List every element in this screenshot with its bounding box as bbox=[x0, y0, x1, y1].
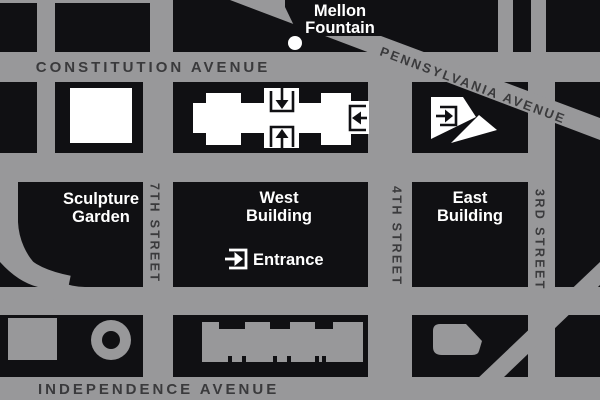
east-building-label-line1: East bbox=[453, 189, 488, 207]
sculpture-garden-label-line2: Garden bbox=[72, 208, 130, 226]
third-street-label: 3RD STREET bbox=[533, 189, 547, 291]
independence-avenue-label: INDEPENDENCE AVENUE bbox=[38, 381, 279, 398]
seventh-street-label: 7TH STREET bbox=[148, 183, 162, 283]
sculpture-garden-label-line1: Sculpture bbox=[63, 190, 139, 208]
mellon-fountain-label-line2: Fountain bbox=[305, 19, 375, 37]
road-stub-north-b bbox=[531, 0, 546, 52]
block-top-left-2 bbox=[55, 3, 150, 52]
road-madison-drive bbox=[0, 153, 555, 182]
east-building-label-line2: Building bbox=[437, 207, 503, 225]
fourth-street-label: 4TH STREET bbox=[390, 186, 404, 286]
road-9th-street-stub bbox=[37, 3, 55, 153]
entrance-label: Entrance bbox=[253, 251, 324, 269]
ring-building-hole bbox=[102, 331, 120, 349]
west-building-label-line1: West bbox=[259, 189, 299, 207]
constitution-avenue-label: CONSTITUTION AVENUE bbox=[36, 59, 271, 76]
mellon-fountain-label-line1: Mellon bbox=[314, 2, 366, 20]
road-jefferson-drive bbox=[0, 287, 600, 315]
mellon-fountain-dot bbox=[288, 36, 302, 50]
map-canvas: CONSTITUTION AVENUE INDEPENDENCE AVENUE … bbox=[0, 0, 600, 400]
mall-building-square bbox=[8, 318, 57, 360]
road-7th-street-north bbox=[150, 0, 173, 52]
nga-area-map: CONSTITUTION AVENUE INDEPENDENCE AVENUE … bbox=[0, 0, 600, 400]
block-row1-left bbox=[0, 82, 37, 153]
block-row3-far-right bbox=[555, 312, 600, 377]
road-stub-north-a bbox=[498, 0, 513, 52]
west-building-label-line2: Building bbox=[246, 207, 312, 225]
sculpture-garden-footprint bbox=[70, 88, 132, 143]
block-top-left-1 bbox=[0, 3, 37, 52]
